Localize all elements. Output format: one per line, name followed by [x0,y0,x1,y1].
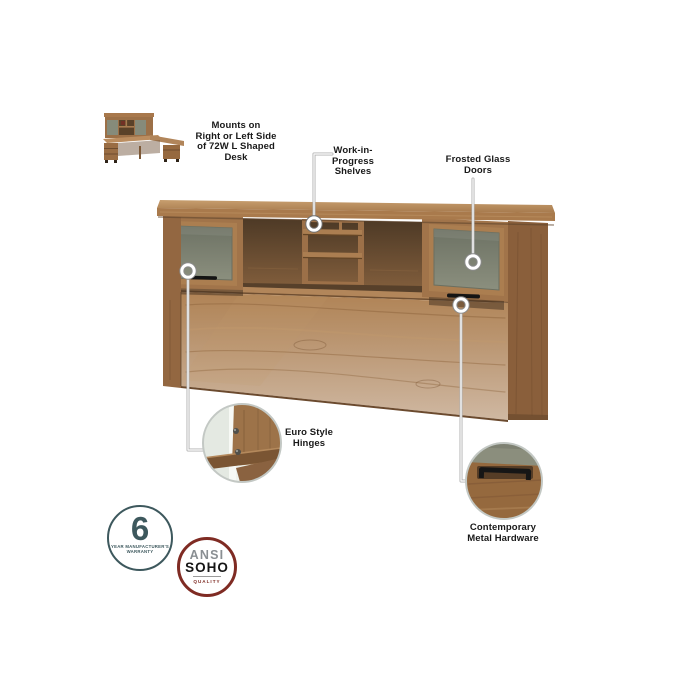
quality-badge-divider [193,576,221,577]
quality-badge: ANSI SOHO QUALITY [177,537,237,597]
thumbnail-desk [103,113,184,163]
quality-badge-series: SOHO [180,561,234,574]
warranty-years: 6 [109,513,171,544]
product-image: Mounts on Right or Left Side of 72W L Sh… [0,0,700,700]
callout-label-shelves: Work-in- Progress Shelves [332,146,374,178]
detail-circle-hardware [466,443,544,521]
detail-circle-hinges [203,404,281,482]
quality-badge-label: QUALITY [180,579,234,584]
hutch-illustration [157,200,555,422]
warranty-caption-line2: WARRANTY [109,549,171,554]
callout-label-hinges: Euro Style Hinges [285,428,333,449]
callout-label-mounts: Mounts on Right or Left Side of 72W L Sh… [196,121,277,163]
product-illustration [0,0,700,700]
warranty-badge: 6 YEAR MANUFACTURER'S WARRANTY [107,505,173,571]
callout-label-hardware: Contemporary Metal Hardware [467,523,539,544]
callout-label-doors: Frosted Glass Doors [446,155,511,176]
